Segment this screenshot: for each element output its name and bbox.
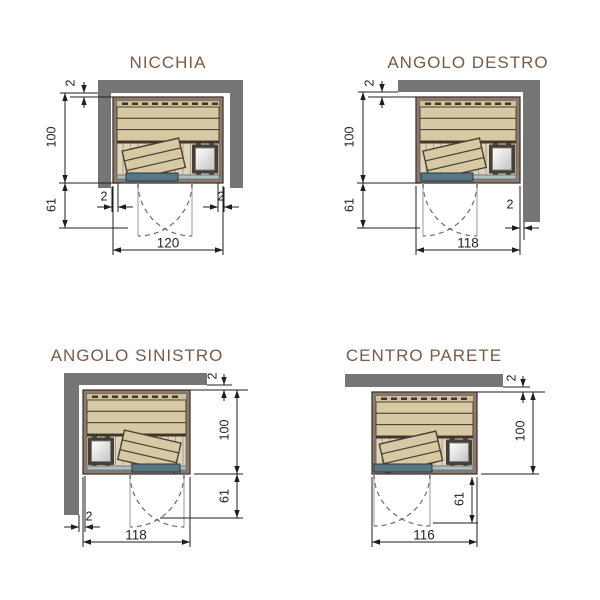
diagram-title: CENTRO PARETE (346, 346, 502, 365)
depth-label: 100 (342, 127, 356, 148)
wall (230, 93, 243, 188)
dim-arrow (234, 510, 239, 518)
panel-tick (391, 398, 397, 401)
bench-plank (376, 402, 473, 413)
wall (523, 80, 540, 222)
panel-tick (212, 103, 218, 106)
diagram-nicchia: NICCHIA21006122120 (44, 53, 243, 255)
panel-tick (122, 396, 128, 399)
panel-tick (401, 398, 407, 401)
diagram-title: NICCHIA (130, 53, 207, 72)
door-swing-arc (374, 474, 430, 526)
panel-tick (162, 396, 168, 399)
heater-tab (209, 143, 214, 145)
bench-plank (117, 118, 219, 129)
heater-tab (506, 143, 511, 145)
door-panel (132, 464, 180, 472)
panel-tick (381, 398, 387, 401)
door-swing-arc (130, 474, 184, 527)
dim-arrow (469, 515, 474, 523)
heater-body (196, 148, 215, 170)
dim-arrow (530, 466, 535, 474)
dim-arrow (71, 524, 79, 529)
dim-arrow (83, 539, 91, 544)
panel-tick (192, 103, 198, 106)
bench-plank (420, 130, 516, 141)
dim-arrow (360, 92, 365, 100)
heater-tab (105, 436, 110, 438)
wall (98, 80, 243, 93)
dim-arrow (512, 225, 520, 230)
heater-body (450, 443, 469, 462)
panel-tick (142, 103, 148, 106)
dim-arrow (234, 466, 239, 474)
diagram-angolo-sinistro: ANGOLO SINISTRO2100612118 (51, 346, 248, 547)
panel-tick (172, 396, 178, 399)
dim-arrow (221, 390, 226, 398)
panel-tick (445, 103, 451, 106)
heater-tab (493, 143, 498, 145)
panel-tick (102, 396, 108, 399)
panel-tick (112, 396, 118, 399)
wall-gap-side-label: 2 (507, 197, 514, 211)
panel-tick (162, 103, 168, 106)
panel-tick (92, 396, 98, 399)
dim-arrow (62, 220, 67, 228)
dim-arrow (210, 204, 218, 209)
dim-arrow (182, 539, 190, 544)
door-swing-arc (138, 183, 192, 236)
heater-tab (463, 438, 468, 440)
diagram-centro-parete: CENTRO PARETE210061116 (345, 346, 545, 547)
wall (98, 93, 111, 188)
door-panel (374, 464, 432, 472)
width-label: 116 (413, 528, 435, 543)
dim-arrow (469, 539, 477, 544)
dim-arrow (104, 204, 112, 209)
door-panel (126, 173, 178, 181)
dim-arrow (530, 392, 535, 400)
door-swing-arc (374, 474, 430, 526)
dim-arrow (224, 204, 232, 209)
door-panel (421, 173, 473, 181)
panel-tick (132, 103, 138, 106)
wall-gap-top-label: 2 (63, 79, 77, 86)
panel-tick (172, 103, 178, 106)
width-label: 120 (157, 236, 180, 251)
panel-tick (411, 398, 417, 401)
panel-tick (431, 398, 437, 401)
panel-tick (441, 398, 447, 401)
dim-arrow (234, 474, 239, 482)
wall-gap-top-label: 2 (504, 374, 518, 381)
dim-arrow (379, 97, 384, 105)
bench-plank (117, 107, 219, 118)
installation-diagrams-svg: NICCHIA21006122120ANGOLO DESTRO210061211… (0, 0, 600, 600)
panel-tick (451, 398, 457, 401)
dim-arrow (85, 524, 93, 529)
dim-arrow (215, 247, 223, 252)
wall-gap-side-label: 2 (101, 189, 108, 203)
panel-tick (475, 103, 481, 106)
width-label: 118 (457, 236, 479, 251)
door-swing-arc (423, 183, 477, 236)
panel-tick (461, 398, 467, 401)
wall-gap-side-label: 2 (86, 509, 93, 523)
door-swing-label: 61 (217, 489, 231, 503)
dim-arrow (113, 247, 121, 252)
dim-arrow (520, 379, 525, 387)
dim-arrow (81, 85, 86, 93)
dim-arrow (520, 392, 525, 400)
bench-plank (420, 118, 516, 129)
panel-tick (435, 103, 441, 106)
wall-gap-top-label: 2 (362, 79, 376, 86)
panel-tick (455, 103, 461, 106)
wall (64, 373, 207, 385)
bench-plank (420, 107, 516, 118)
dim-arrow (234, 390, 239, 398)
dim-arrow (221, 377, 226, 385)
panel-tick (122, 103, 128, 106)
panel-tick (142, 396, 148, 399)
panel-tick (132, 396, 138, 399)
depth-label: 100 (513, 421, 527, 442)
panel-tick (182, 103, 188, 106)
dim-arrow (512, 247, 520, 252)
panel-tick (421, 398, 427, 401)
panel-tick (485, 103, 491, 106)
dim-arrow (416, 247, 424, 252)
panel-tick (465, 103, 471, 106)
panel-tick (505, 103, 511, 106)
dim-arrow (372, 539, 380, 544)
diagram-angolo-destro: ANGOLO DESTRO2100612118 (342, 53, 548, 255)
width-label: 118 (125, 528, 147, 543)
wall-gap-top-label: 2 (205, 372, 219, 379)
dim-arrow (360, 183, 365, 191)
door-swing-label: 61 (44, 198, 58, 212)
dim-arrow (379, 84, 384, 92)
dim-arrow (81, 97, 86, 105)
door-swing-arc (138, 183, 192, 236)
heater-body (92, 441, 111, 462)
door-swing-label: 61 (342, 198, 356, 212)
panel-tick (152, 396, 158, 399)
wall (345, 374, 503, 387)
bench-plank (87, 400, 186, 411)
heater-body (493, 148, 512, 170)
diagram-title: ANGOLO DESTRO (387, 53, 548, 72)
heater-tab (92, 436, 97, 438)
depth-label: 100 (217, 420, 231, 441)
dim-arrow (524, 225, 532, 230)
bench-plank (87, 411, 186, 422)
wall (64, 373, 79, 515)
door-swing-arc (130, 474, 184, 527)
dim-arrow (360, 175, 365, 183)
wall (398, 80, 540, 92)
bench-plank (117, 130, 219, 141)
panel-tick (425, 103, 431, 106)
depth-label: 100 (44, 127, 58, 148)
door-swing-label: 61 (452, 492, 466, 506)
panel-tick (202, 103, 208, 106)
panel-tick (152, 103, 158, 106)
sauna-installation-sheet: NICCHIA21006122120ANGOLO DESTRO210061211… (0, 0, 600, 600)
dim-arrow (118, 204, 126, 209)
heater-tab (196, 143, 201, 145)
dim-arrow (469, 477, 474, 485)
door-swing-arc (423, 183, 477, 236)
panel-tick (495, 103, 501, 106)
dim-arrow (360, 220, 365, 228)
dim-arrow (62, 175, 67, 183)
dim-arrow (62, 93, 67, 101)
diagram-title: ANGOLO SINISTRO (51, 346, 224, 365)
bench-plank (376, 413, 473, 424)
heater-tab (450, 438, 455, 440)
dim-arrow (62, 183, 67, 191)
